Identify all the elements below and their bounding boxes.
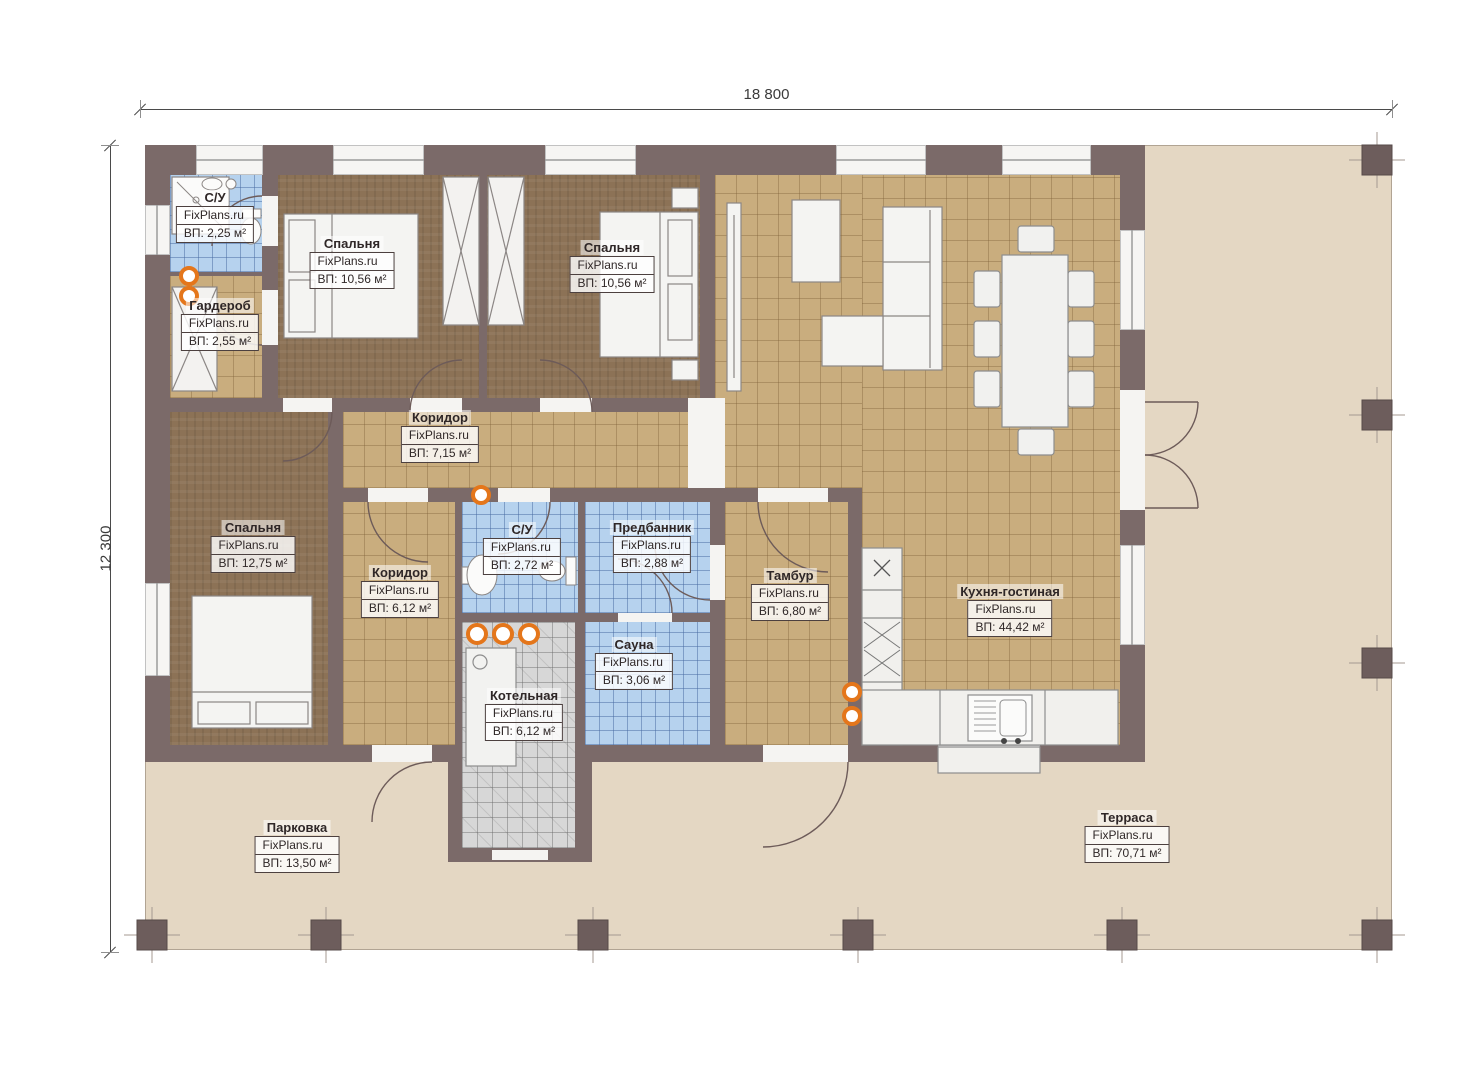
room-area: ВП: 10,56 м²: [571, 275, 654, 292]
room-area: ВП: 2,55 м²: [182, 333, 258, 350]
room-name: С/У: [508, 522, 535, 537]
room-label-corridor2: Коридор FixPlans.ru ВП: 6,12 м²: [361, 565, 439, 618]
kitchen-sink: [968, 695, 1032, 744]
room-label-bedroom2: Спальня FixPlans.ru ВП: 10,56 м²: [570, 240, 655, 293]
room-name: Спальня: [222, 520, 284, 535]
room-label-kotelnaya: Котельная FixPlans.ru ВП: 6,12 м²: [485, 688, 563, 741]
wardrobe-bedroom2: [488, 177, 524, 325]
room-brand: FixPlans.ru: [212, 537, 295, 555]
room-area: ВП: 13,50 м²: [256, 855, 339, 872]
room-name: Сауна: [611, 637, 656, 652]
room-brand: FixPlans.ru: [362, 582, 438, 600]
dining-table-set: [974, 226, 1094, 455]
room-name: Гардероб: [186, 298, 253, 313]
bed-bedroom3: [192, 596, 312, 728]
room-brand: FixPlans.ru: [752, 585, 828, 603]
room-brand: FixPlans.ru: [402, 427, 478, 445]
room-name: Парковка: [264, 820, 331, 835]
room-name: Котельная: [487, 688, 561, 703]
room-brand: FixPlans.ru: [484, 539, 560, 557]
room-brand: FixPlans.ru: [614, 537, 690, 555]
room-area: ВП: 6,12 м²: [486, 723, 562, 740]
room-name: Коридор: [409, 410, 471, 425]
room-brand: FixPlans.ru: [969, 601, 1052, 619]
room-area: ВП: 12,75 м²: [212, 555, 295, 572]
room-brand: FixPlans.ru: [311, 253, 394, 271]
room-label-terrace: Терраса FixPlans.ru ВП: 70,71 м²: [1085, 810, 1170, 863]
room-area: ВП: 6,80 м²: [752, 603, 828, 620]
room-name: С/У: [201, 190, 228, 205]
room-brand: FixPlans.ru: [1086, 827, 1169, 845]
room-brand: FixPlans.ru: [177, 207, 253, 225]
room-label-bedroom1: Спальня FixPlans.ru ВП: 10,56 м²: [310, 236, 395, 289]
room-label-tambur: Тамбур FixPlans.ru ВП: 6,80 м²: [751, 568, 829, 621]
room-area: ВП: 6,12 м²: [362, 600, 438, 617]
room-label-kitchen: Кухня-гостиная FixPlans.ru ВП: 44,42 м²: [957, 584, 1063, 637]
room-brand: FixPlans.ru: [596, 654, 672, 672]
room-label-predbannik: Предбанник FixPlans.ru ВП: 2,88 м²: [610, 520, 694, 573]
room-area: ВП: 70,71 м²: [1086, 845, 1169, 862]
coffee-table: [792, 200, 840, 282]
room-area: ВП: 3,06 м²: [596, 672, 672, 689]
room-name: Коридор: [369, 565, 431, 580]
room-area: ВП: 7,15 м²: [402, 445, 478, 462]
room-label-corridor1: Коридор FixPlans.ru ВП: 7,15 м²: [401, 410, 479, 463]
room-area: ВП: 2,25 м²: [177, 225, 253, 242]
room-area: ВП: 10,56 м²: [311, 271, 394, 288]
room-brand: FixPlans.ru: [256, 837, 339, 855]
room-label-parking: Парковка FixPlans.ru ВП: 13,50 м²: [255, 820, 340, 873]
room-label-su2: С/У FixPlans.ru ВП: 2,72 м²: [483, 522, 561, 575]
room-name: Тамбур: [763, 568, 816, 583]
room-brand: FixPlans.ru: [182, 315, 258, 333]
room-label-su1: С/У FixPlans.ru ВП: 2,25 м²: [176, 190, 254, 243]
room-label-sauna: Сауна FixPlans.ru ВП: 3,06 м²: [595, 637, 673, 690]
room-area: ВП: 2,72 м²: [484, 557, 560, 574]
room-name: Спальня: [581, 240, 643, 255]
room-name: Спальня: [321, 236, 383, 251]
room-name: Предбанник: [610, 520, 694, 535]
floor-plan-canvas: С/У FixPlans.ru ВП: 2,25 м² Гардероб Fix…: [0, 0, 1474, 1080]
tv-unit: [727, 203, 741, 391]
wardrobe-bedroom1: [443, 177, 479, 325]
room-label-bedroom3: Спальня FixPlans.ru ВП: 12,75 м²: [211, 520, 296, 573]
room-name: Кухня-гостиная: [957, 584, 1063, 599]
room-brand: FixPlans.ru: [486, 705, 562, 723]
room-area: ВП: 2,88 м²: [614, 555, 690, 572]
room-brand: FixPlans.ru: [571, 257, 654, 275]
room-name: Терраса: [1098, 810, 1156, 825]
room-label-garderob: Гардероб FixPlans.ru ВП: 2,55 м²: [181, 298, 259, 351]
sink-su1: [202, 178, 236, 190]
room-area: ВП: 44,42 м²: [969, 619, 1052, 636]
